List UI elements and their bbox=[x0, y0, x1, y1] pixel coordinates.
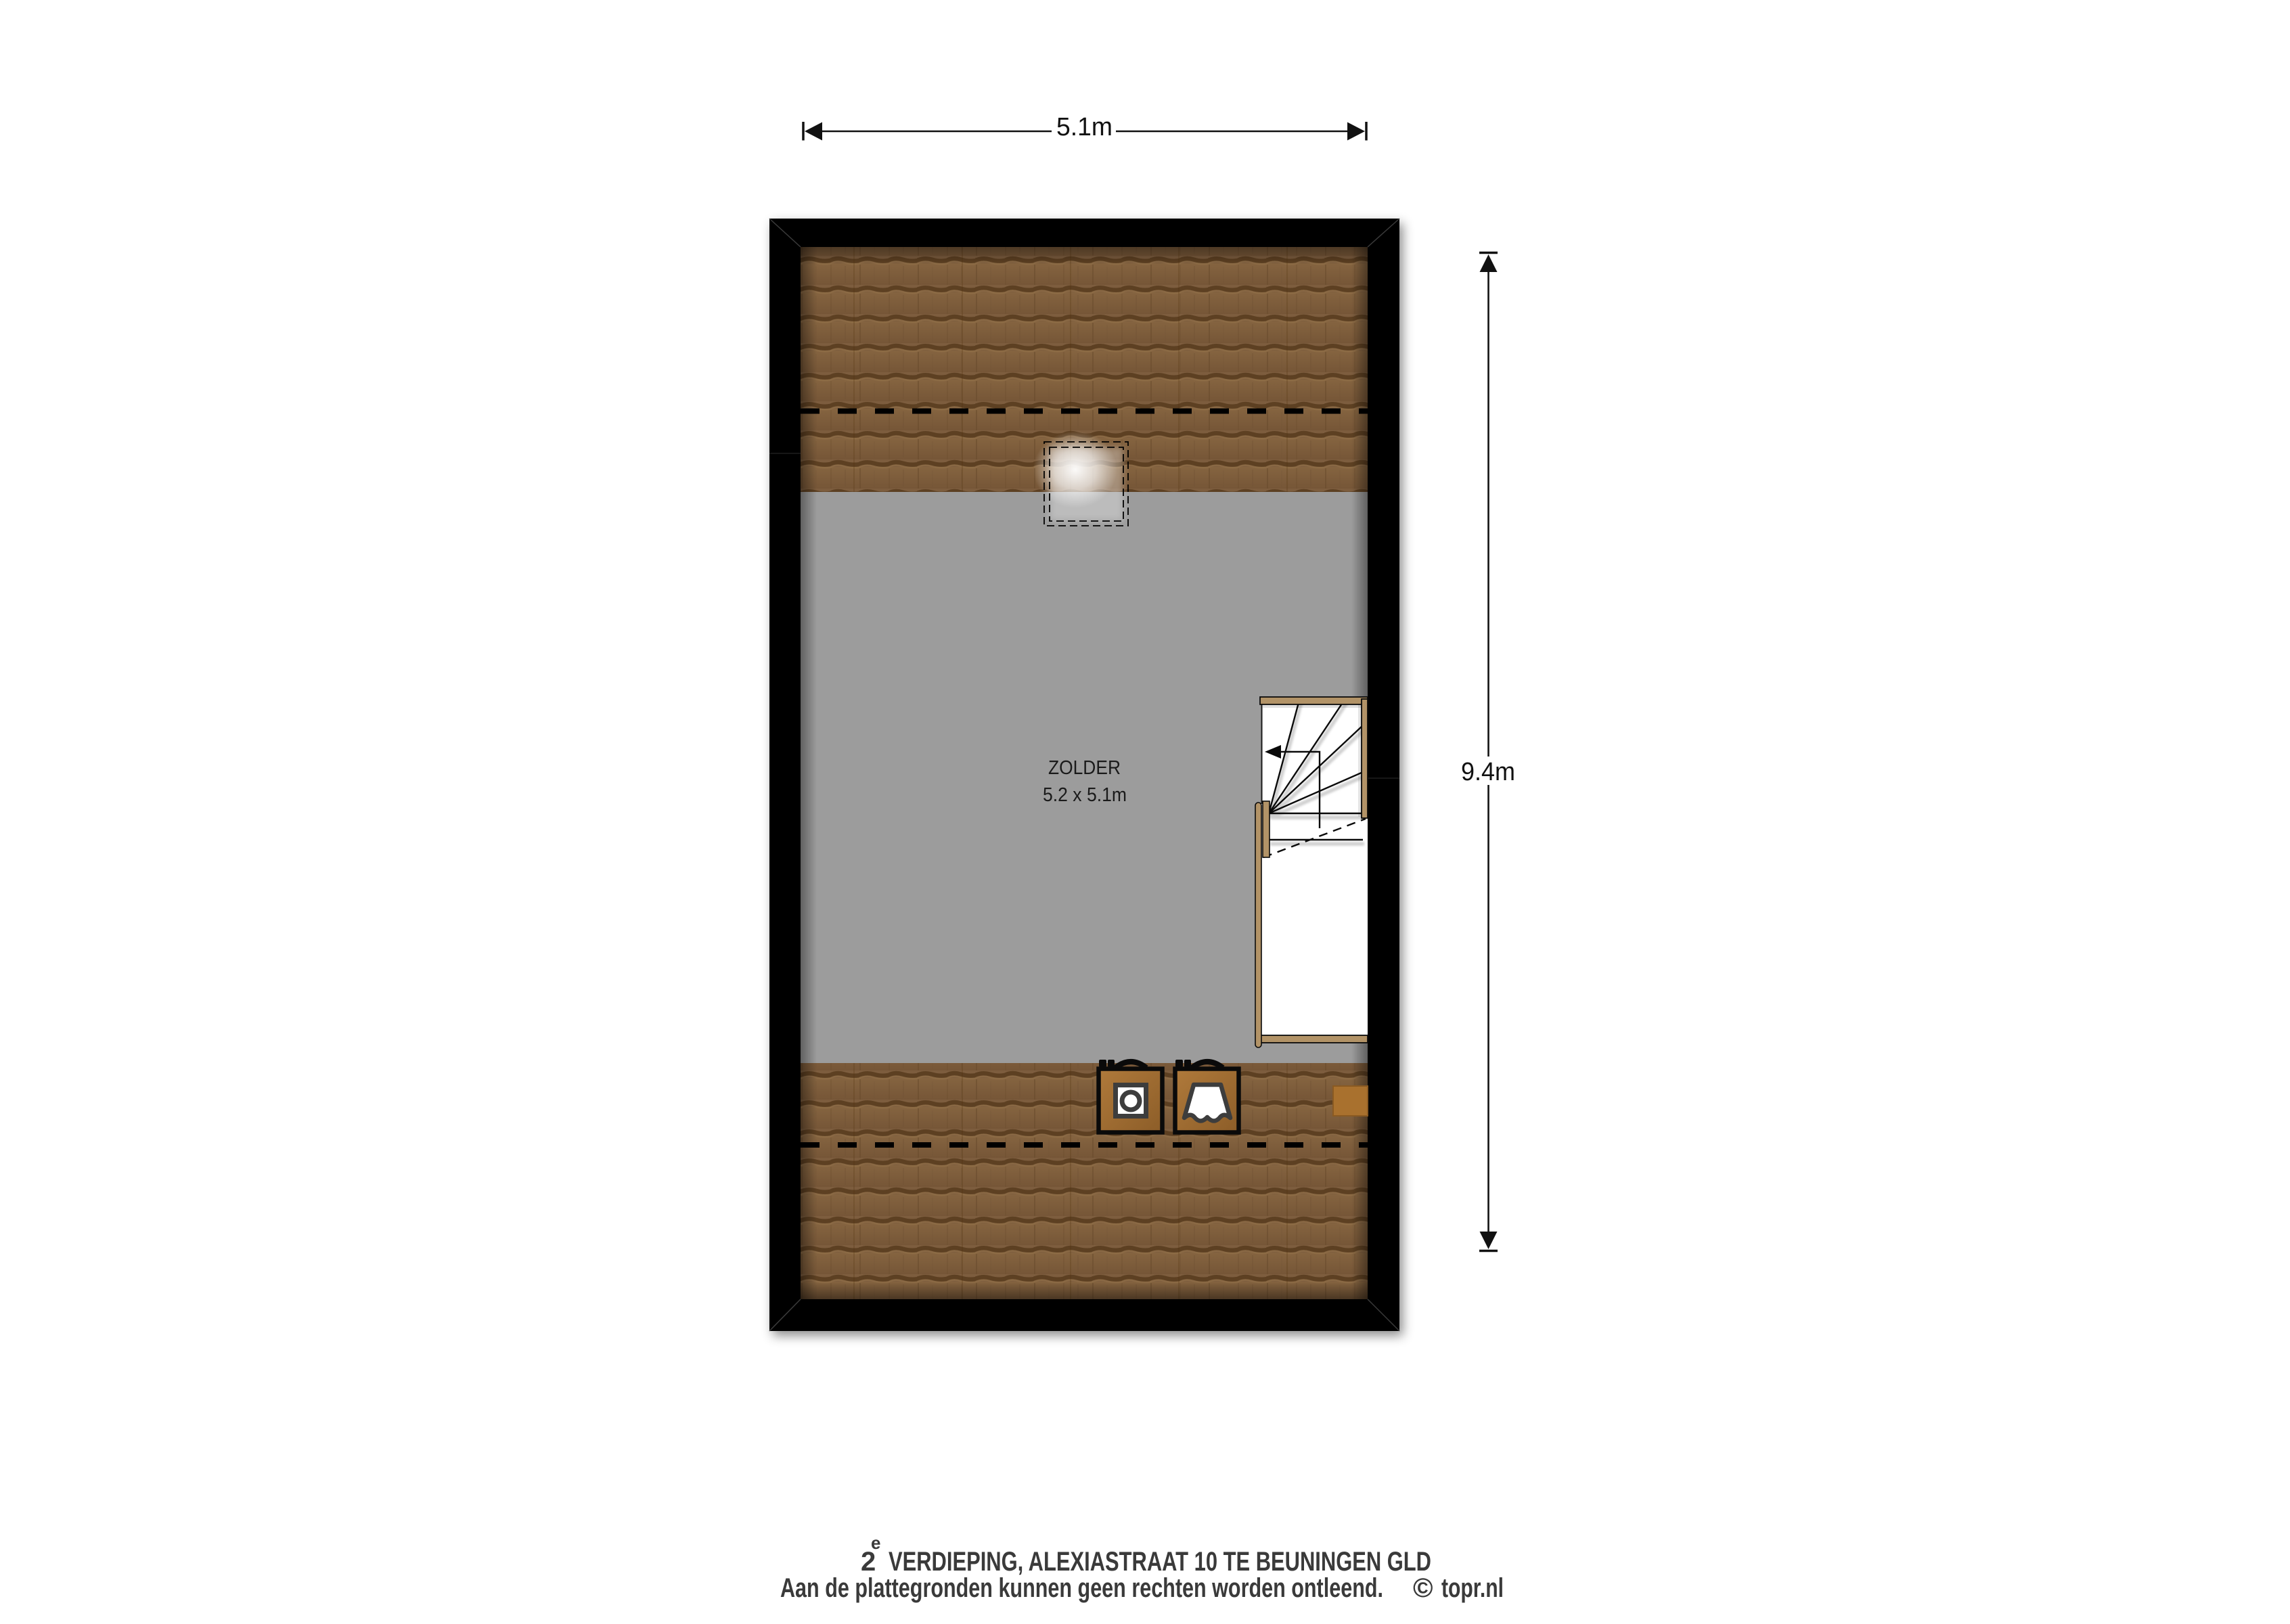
svg-text:5.1m: 5.1m bbox=[1056, 113, 1113, 141]
svg-text:©: © bbox=[1413, 1573, 1433, 1603]
svg-text:Aan de plattegronden kunnen ge: Aan de plattegronden kunnen geen rechten… bbox=[780, 1573, 1383, 1603]
svg-text:5.2 x 5.1m: 5.2 x 5.1m bbox=[1043, 784, 1127, 806]
svg-text:e: e bbox=[871, 1533, 880, 1553]
svg-text:VERDIEPING, ALEXIASTRAAT 10 TE: VERDIEPING, ALEXIASTRAAT 10 TE BEUNINGEN… bbox=[889, 1547, 1431, 1577]
svg-text:9.4m: 9.4m bbox=[1461, 758, 1515, 786]
svg-text:ZOLDER: ZOLDER bbox=[1048, 757, 1121, 779]
svg-text:topr.nl: topr.nl bbox=[1441, 1573, 1504, 1603]
